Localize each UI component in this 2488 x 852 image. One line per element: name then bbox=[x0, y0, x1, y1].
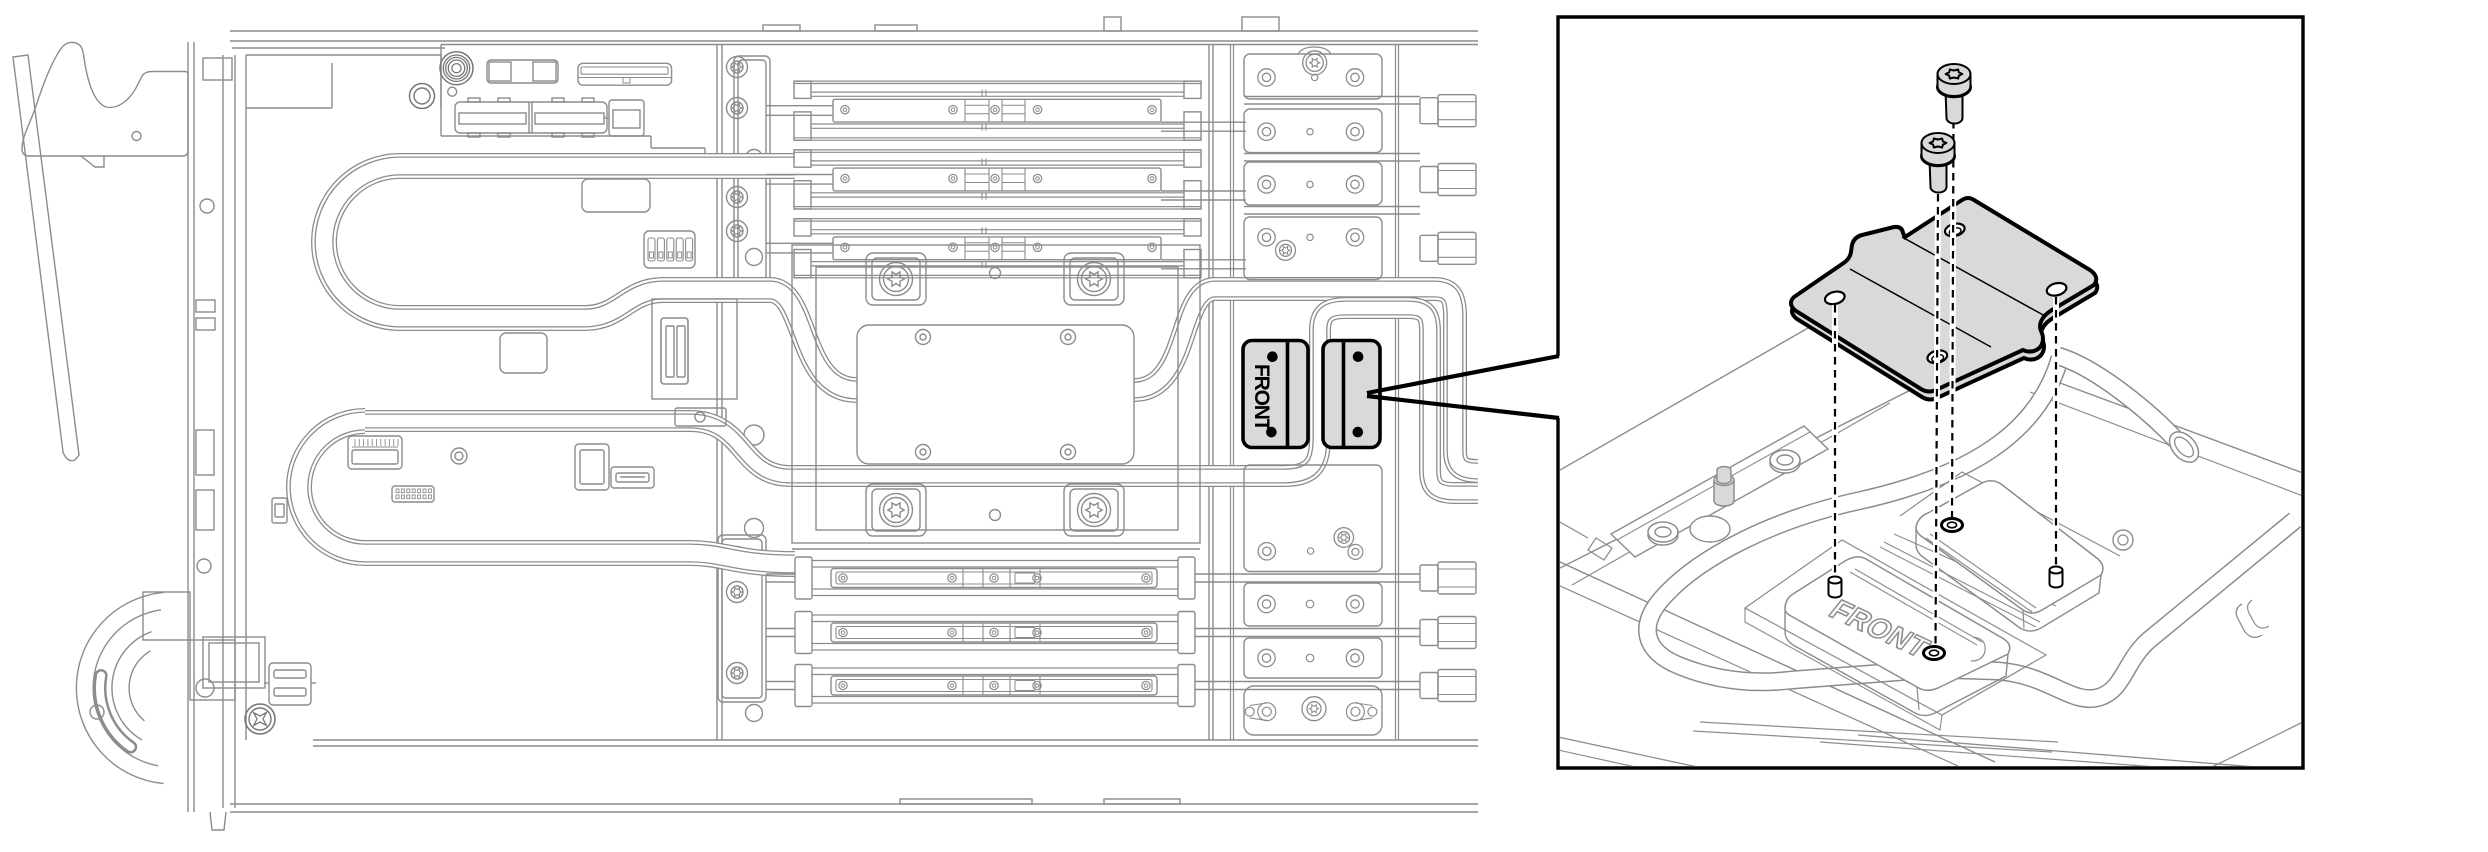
svg-text:FRONT: FRONT bbox=[1250, 364, 1273, 432]
